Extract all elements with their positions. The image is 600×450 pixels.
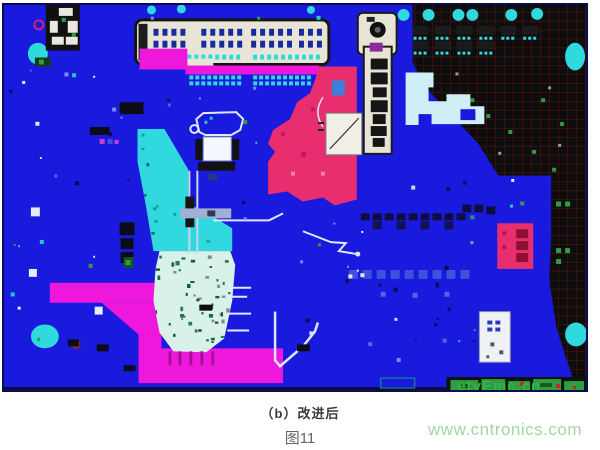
magenta-pour-strip [140, 49, 188, 70]
white-ic-component [479, 312, 510, 363]
magenta-pour-strip [185, 66, 319, 75]
pink-component-block [497, 223, 533, 269]
pcb-screenshot: etyEmc.cn [2, 3, 588, 392]
site-watermark: www.cntronics.com [428, 420, 582, 440]
article-page: etyEmc.cn （b）改进后 图11 www.cntronics.com [0, 0, 600, 450]
pcb-layout-figure: etyEmc.cn [2, 3, 588, 392]
vertical-connector-component [358, 13, 397, 154]
